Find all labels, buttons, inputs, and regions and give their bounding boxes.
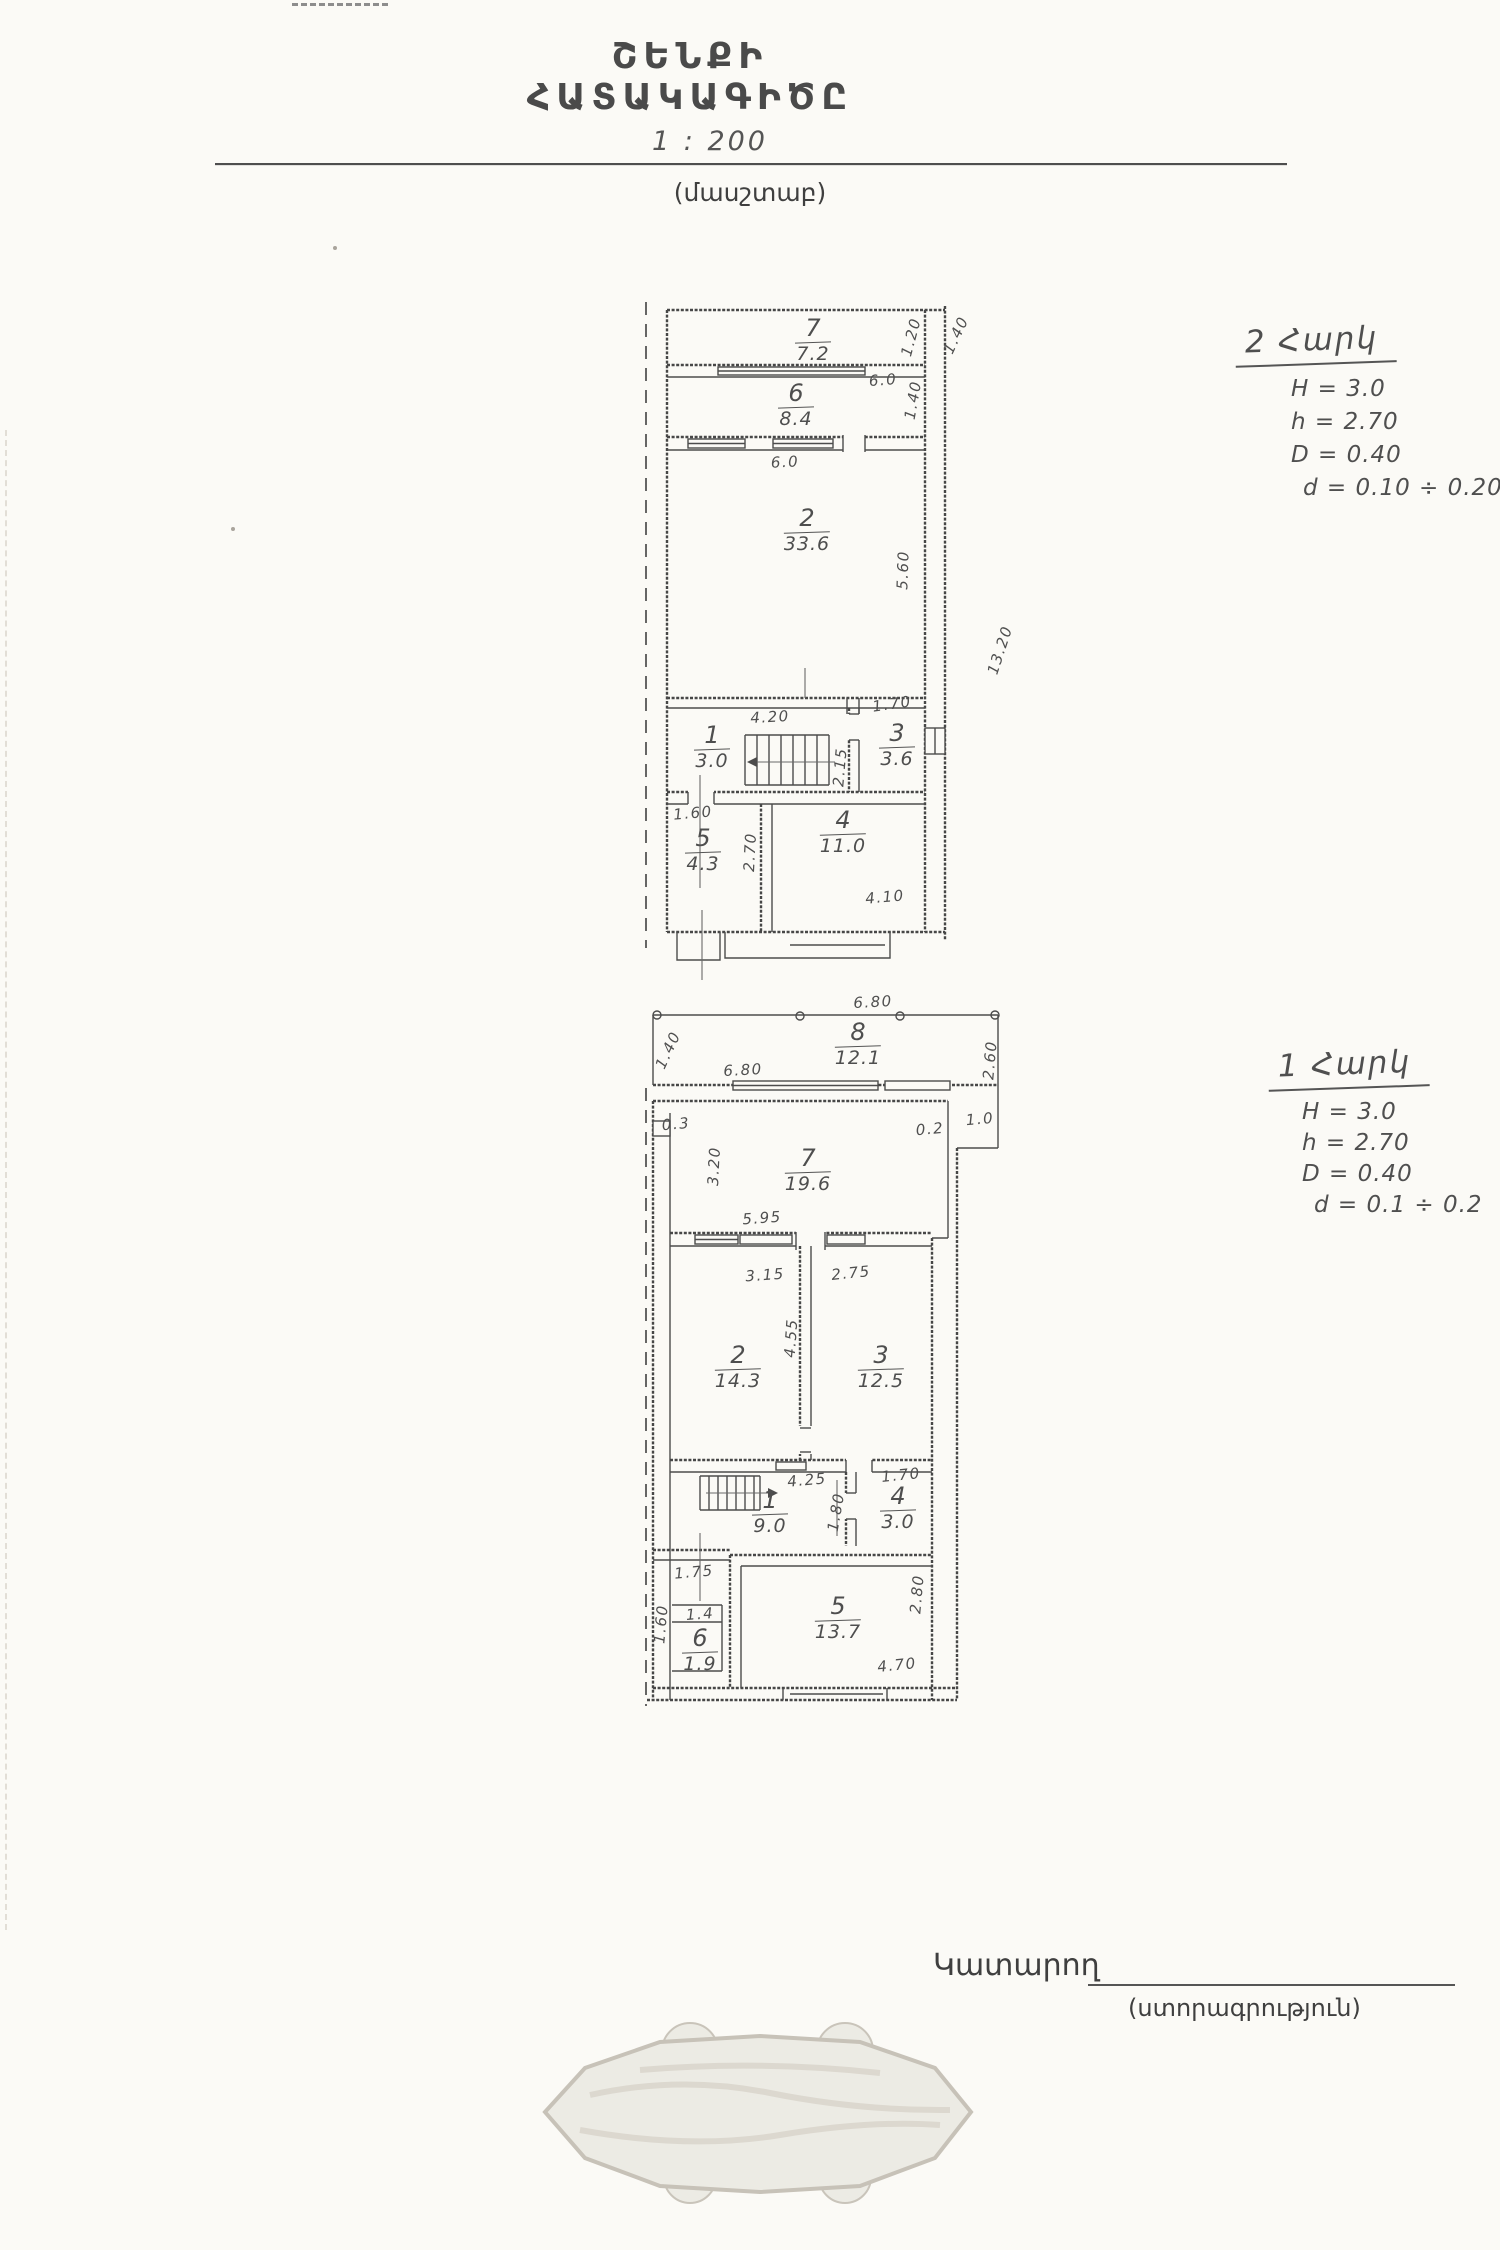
- note-line: d = 0.10 ÷ 0.20: [1291, 472, 1500, 505]
- scale-underline: [215, 163, 1287, 165]
- dim-label: 1.75: [674, 1561, 715, 1582]
- dim-label: 3.15: [745, 1265, 786, 1286]
- scan-artifact-dot: [231, 527, 235, 531]
- floor-2-labels: 77.268.4233.613.033.654.3411.06.06.01.20…: [600, 280, 1080, 980]
- scan-artifact-left-edge: [5, 430, 7, 1930]
- scan-artifact-dashes: [292, 3, 388, 6]
- room-3-label: 33.6: [879, 721, 915, 769]
- dim-label: 1.40: [652, 1028, 685, 1071]
- signature-caption: (ստորագրություն): [1128, 1994, 1361, 2022]
- dim-label: 1.80: [824, 1491, 849, 1533]
- room-5-label: 513.7: [815, 1594, 861, 1642]
- scan-artifact-dot: [333, 246, 337, 250]
- room-1-label: 19.0: [752, 1488, 788, 1536]
- room-2-label: 233.6: [784, 506, 830, 554]
- executor-label: Կատարող: [933, 1948, 1100, 1983]
- room-3-label: 312.5: [858, 1343, 904, 1391]
- dim-label: 2.75: [830, 1262, 871, 1284]
- room-4-label: 43.0: [880, 1484, 916, 1532]
- dim-label: 1.40: [940, 313, 973, 356]
- room-2-label: 214.3: [715, 1343, 761, 1391]
- dim-label: 2.60: [979, 1040, 1000, 1081]
- dim-label: 5.60: [893, 550, 912, 590]
- dim-label: 4.20: [750, 707, 790, 727]
- dim-label: 2.15: [829, 747, 850, 788]
- dim-label: 3.20: [704, 1146, 724, 1186]
- dim-label: 2.70: [740, 832, 760, 872]
- faded-stamp: [520, 2015, 1000, 2215]
- room-7-label: 77.2: [795, 316, 831, 364]
- note-line: h = 2.70: [1291, 406, 1500, 439]
- room-4-label: 411.0: [820, 808, 866, 856]
- dim-label: 4.70: [876, 1654, 917, 1676]
- dim-label: 6.0: [868, 370, 898, 390]
- room-6-label: 61.9: [682, 1626, 718, 1674]
- dim-label: 4.55: [781, 1318, 802, 1359]
- page-title: ՇԵՆՔԻ ՀԱՏԱԿԱԳԻԾԸ: [440, 36, 940, 118]
- note-line: D = 0.40: [1302, 1159, 1500, 1190]
- dim-label: 2.80: [906, 1574, 927, 1615]
- dim-label: 13.20: [984, 623, 1017, 677]
- signature-line: [1088, 1984, 1455, 1986]
- dim-label: 0.3: [661, 1114, 691, 1134]
- dim-label: 6.80: [723, 1060, 763, 1080]
- scanned-page: ՇԵՆՔԻ ՀԱՏԱԿԱԳԻԾԸ 1 : 200 (մասշտաբ): [0, 0, 1500, 2250]
- dim-label: 1.0: [965, 1109, 995, 1129]
- dim-label: 4.25: [787, 1469, 828, 1490]
- note-line: h = 2.70: [1302, 1128, 1500, 1159]
- dim-label: 6.0: [770, 452, 799, 471]
- note-line: H = 3.0: [1302, 1097, 1500, 1128]
- dim-label: 6.80: [853, 992, 893, 1012]
- dim-label: 1.60: [673, 802, 714, 823]
- floor-1-note-lines: H = 3.0h = 2.70D = 0.40d = 0.1 ÷ 0.2: [1268, 1097, 1500, 1221]
- floor-1-plan: 812.1719.6214.3312.519.043.0513.761.96.8…: [600, 988, 1080, 1788]
- note-line: d = 0.1 ÷ 0.2: [1302, 1190, 1500, 1221]
- floor-2-note: 2 Հարկ H = 3.0h = 2.70D = 0.40d = 0.10 ÷…: [1235, 322, 1500, 505]
- dim-label: 1.40: [901, 379, 926, 421]
- scale-value: 1 : 200: [610, 126, 810, 157]
- room-5-label: 54.3: [685, 826, 721, 874]
- floor-2-note-lines: H = 3.0h = 2.70D = 0.40d = 0.10 ÷ 0.20: [1235, 373, 1500, 505]
- dim-label: 1.4: [685, 1604, 715, 1624]
- dim-label: 5.95: [742, 1208, 783, 1229]
- room-8-label: 812.1: [835, 1020, 881, 1068]
- dim-label: 0.2: [915, 1119, 945, 1139]
- note-line: D = 0.40: [1291, 439, 1500, 472]
- room-1-label: 13.0: [694, 723, 730, 771]
- room-6-label: 68.4: [778, 381, 814, 429]
- floor-1-note: 1 Հարկ H = 3.0h = 2.70D = 0.40d = 0.1 ÷ …: [1268, 1046, 1500, 1221]
- dim-label: 1.20: [897, 316, 925, 359]
- floor-1-labels: 812.1719.6214.3312.519.043.0513.761.96.8…: [600, 988, 1080, 1788]
- dim-label: 1.60: [650, 1604, 671, 1645]
- dim-label: 4.10: [865, 886, 906, 907]
- scale-caption: (մասշտաբ): [620, 178, 880, 207]
- dim-label: 1.70: [871, 692, 913, 715]
- floor-2-plan: 77.268.4233.613.033.654.3411.06.06.01.20…: [600, 280, 1080, 980]
- dim-label: 1.70: [880, 1464, 921, 1486]
- floor-2-note-heading: 2 Հարկ: [1234, 319, 1397, 368]
- floor-1-note-heading: 1 Հարկ: [1267, 1043, 1430, 1092]
- room-7-label: 719.6: [785, 1146, 831, 1194]
- note-line: H = 3.0: [1291, 373, 1500, 406]
